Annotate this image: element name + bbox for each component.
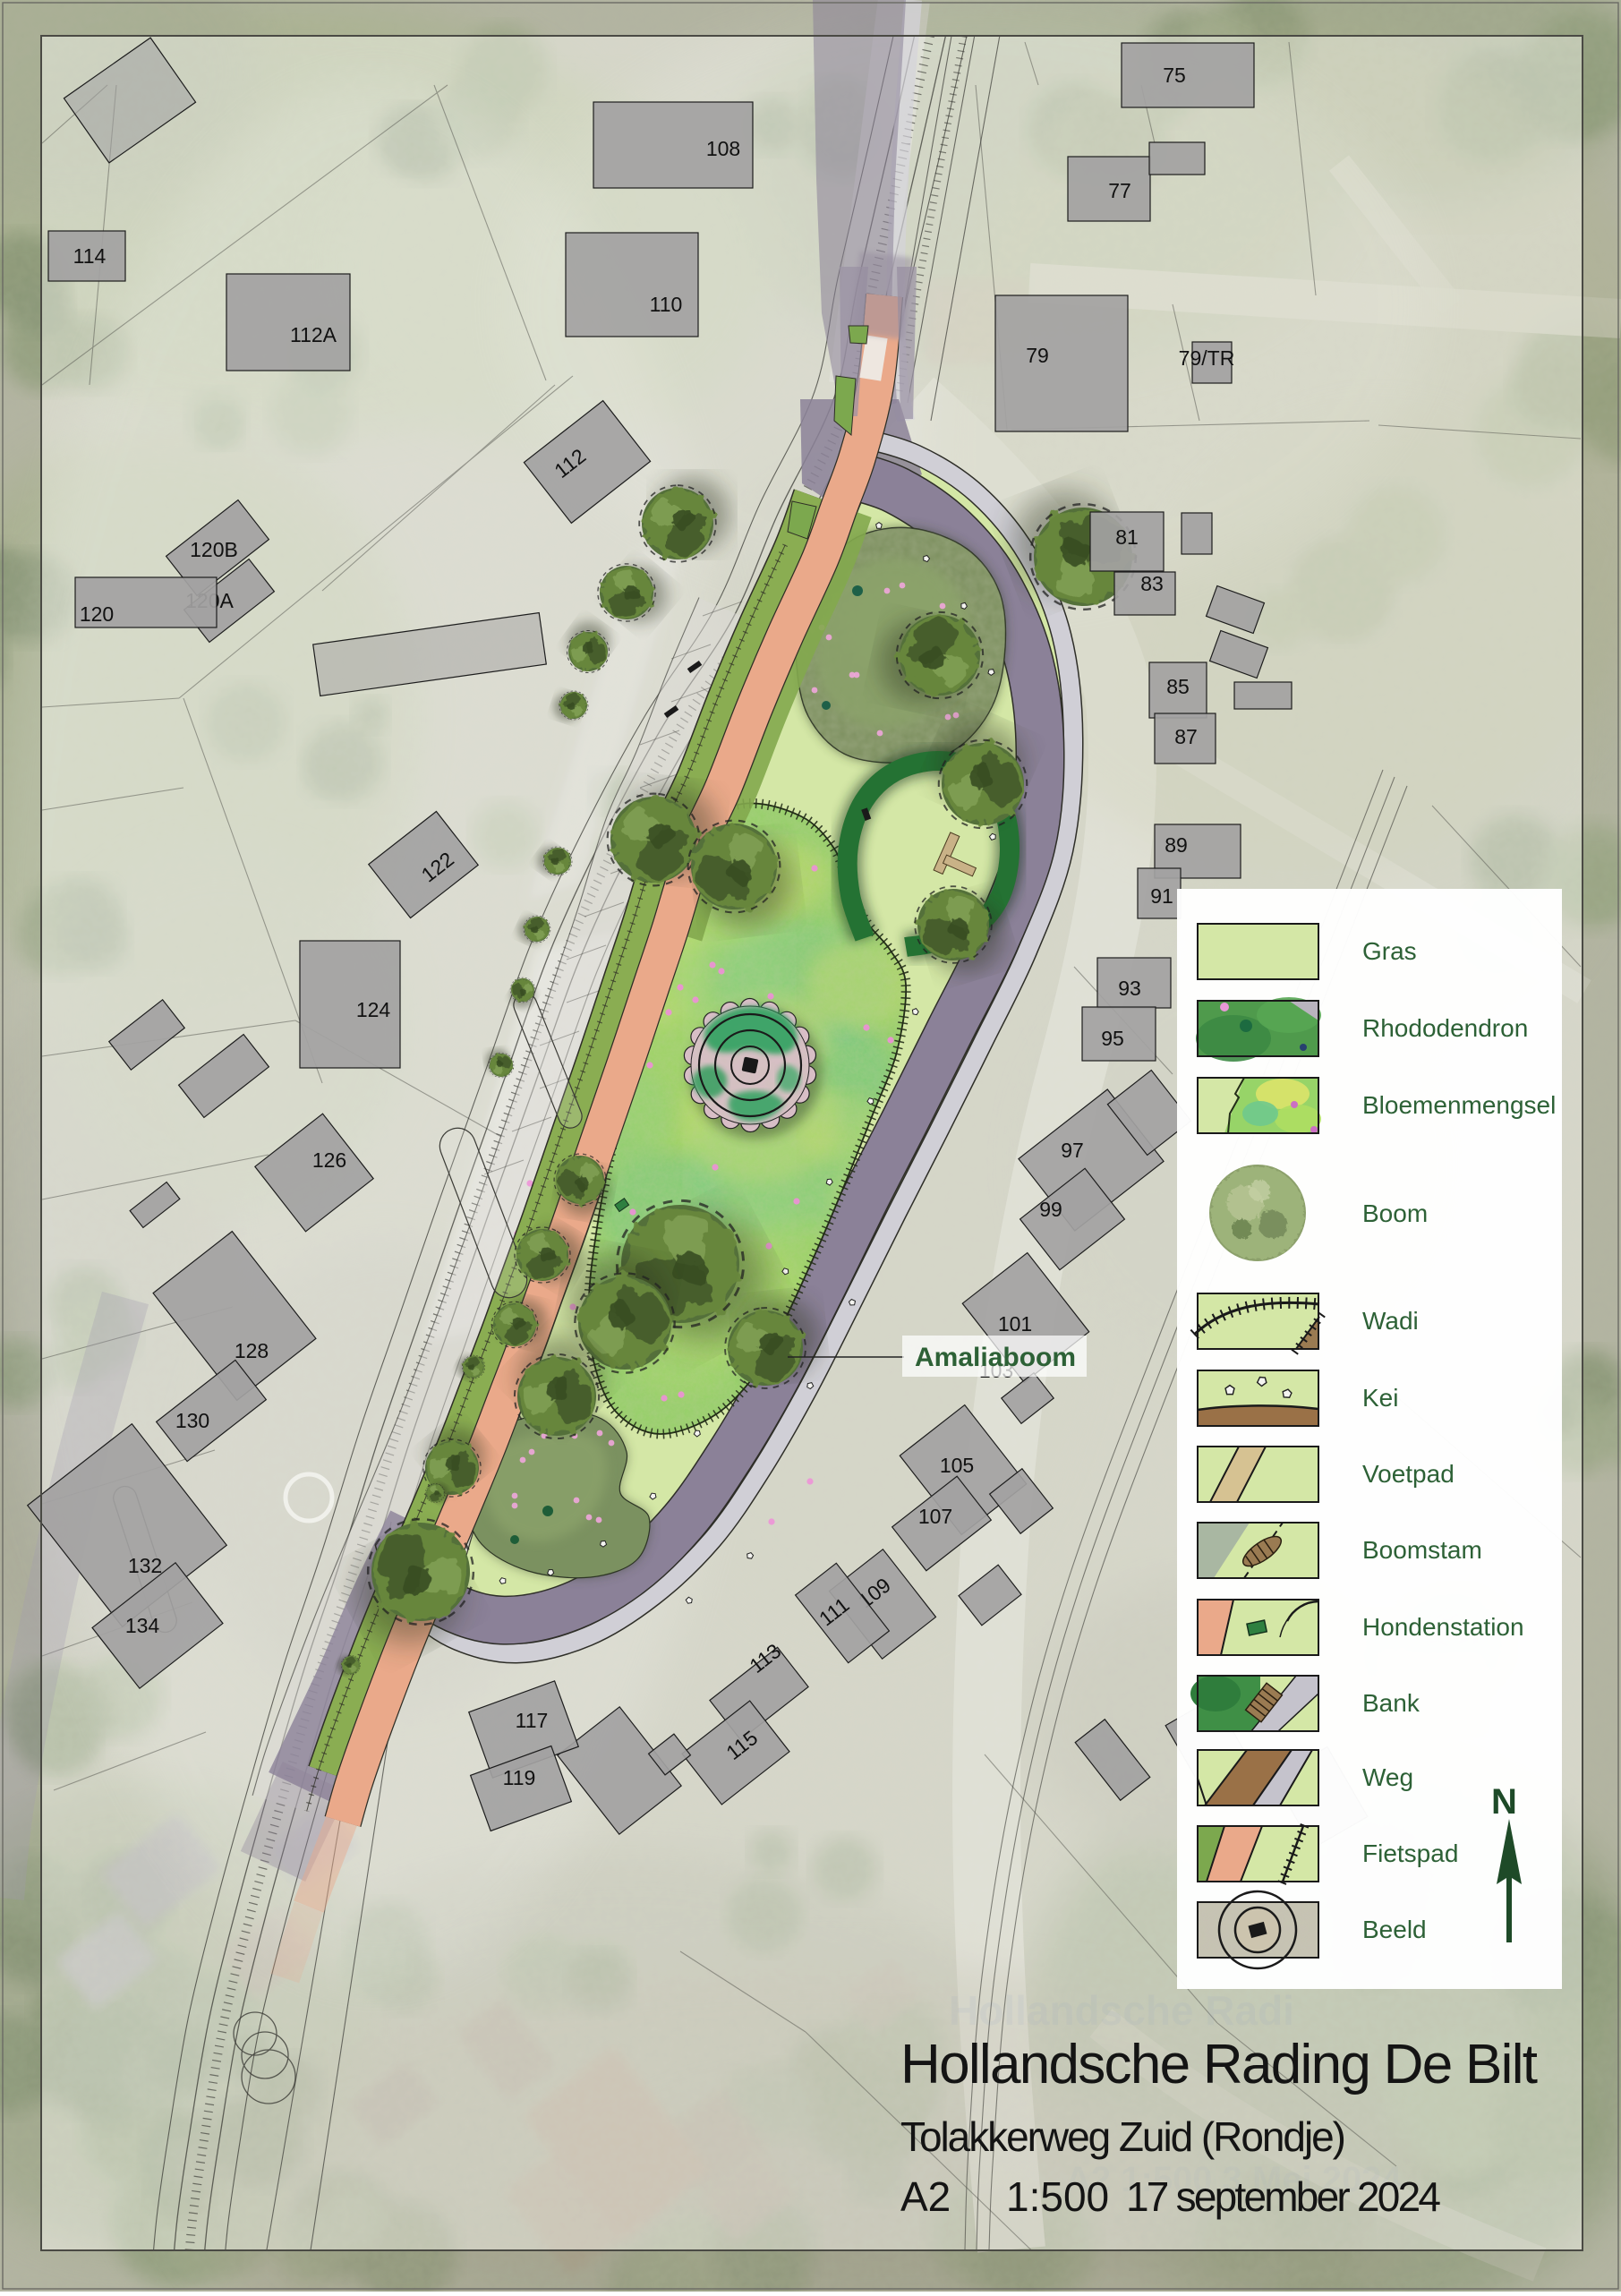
svg-text:87: 87 [1174,725,1198,748]
svg-text:124: 124 [356,998,391,1021]
svg-text:Boom: Boom [1362,1199,1428,1227]
svg-text:N: N [1491,1782,1517,1822]
svg-text:130: 130 [175,1409,209,1432]
svg-text:Hondenstation: Hondenstation [1362,1613,1524,1641]
svg-text:79: 79 [1026,344,1049,367]
svg-text:79/TR: 79/TR [1179,346,1235,370]
svg-text:126: 126 [312,1148,346,1172]
svg-text:99: 99 [1039,1198,1062,1221]
svg-text:Hollandsche Radi: Hollandsche Radi [949,1987,1294,2034]
svg-text:17 september 2024: 17 september 2024 [1126,2173,1441,2220]
svg-text:Amaliaboom: Amaliaboom [915,1343,1076,1372]
svg-text:Beeld: Beeld [1362,1916,1427,1943]
svg-text:81: 81 [1115,525,1139,549]
svg-text:77: 77 [1108,179,1131,202]
svg-text:Rhododendron: Rhododendron [1362,1014,1528,1042]
svg-text:Tolakkerweg Zuid (Rondje): Tolakkerweg Zuid (Rondje) [900,2113,1346,2160]
svg-text:134: 134 [125,1614,160,1637]
svg-text:120: 120 [80,602,114,626]
svg-text:101: 101 [998,1312,1032,1336]
svg-text:95: 95 [1101,1027,1124,1050]
svg-text:128: 128 [235,1339,269,1362]
svg-text:89: 89 [1165,833,1188,857]
svg-text:117: 117 [516,1709,549,1732]
svg-text:119: 119 [503,1766,536,1789]
svg-text:120B: 120B [190,538,238,561]
svg-text:Weg: Weg [1362,1763,1413,1791]
svg-text:105: 105 [940,1454,974,1477]
svg-text:Voetpad: Voetpad [1362,1460,1455,1488]
svg-text:108: 108 [706,137,740,160]
svg-text:Bloemenmengsel: Bloemenmengsel [1362,1091,1556,1119]
svg-text:1:500: 1:500 [1006,2173,1109,2220]
svg-text:110: 110 [650,293,683,316]
svg-text:114: 114 [73,244,107,268]
svg-text:132: 132 [128,1554,162,1577]
svg-text:Bank: Bank [1362,1689,1421,1717]
svg-text:75: 75 [1163,64,1186,87]
svg-text:Boomstam: Boomstam [1362,1536,1482,1564]
svg-text:Gras: Gras [1362,937,1417,965]
svg-text:93: 93 [1118,977,1141,1000]
svg-text:85: 85 [1166,675,1190,698]
svg-text:107: 107 [918,1505,952,1528]
svg-text:Kei: Kei [1362,1384,1398,1412]
svg-text:Hollandsche Rading De Bilt: Hollandsche Rading De Bilt [900,2034,1538,2095]
svg-text:91: 91 [1150,884,1173,908]
svg-text:112A: 112A [290,323,337,346]
svg-text:Wadi: Wadi [1362,1307,1419,1335]
svg-text:97: 97 [1061,1139,1084,1162]
svg-text:83: 83 [1140,572,1164,595]
svg-text:Fietspad: Fietspad [1362,1839,1458,1867]
svg-text:A2: A2 [900,2173,951,2220]
